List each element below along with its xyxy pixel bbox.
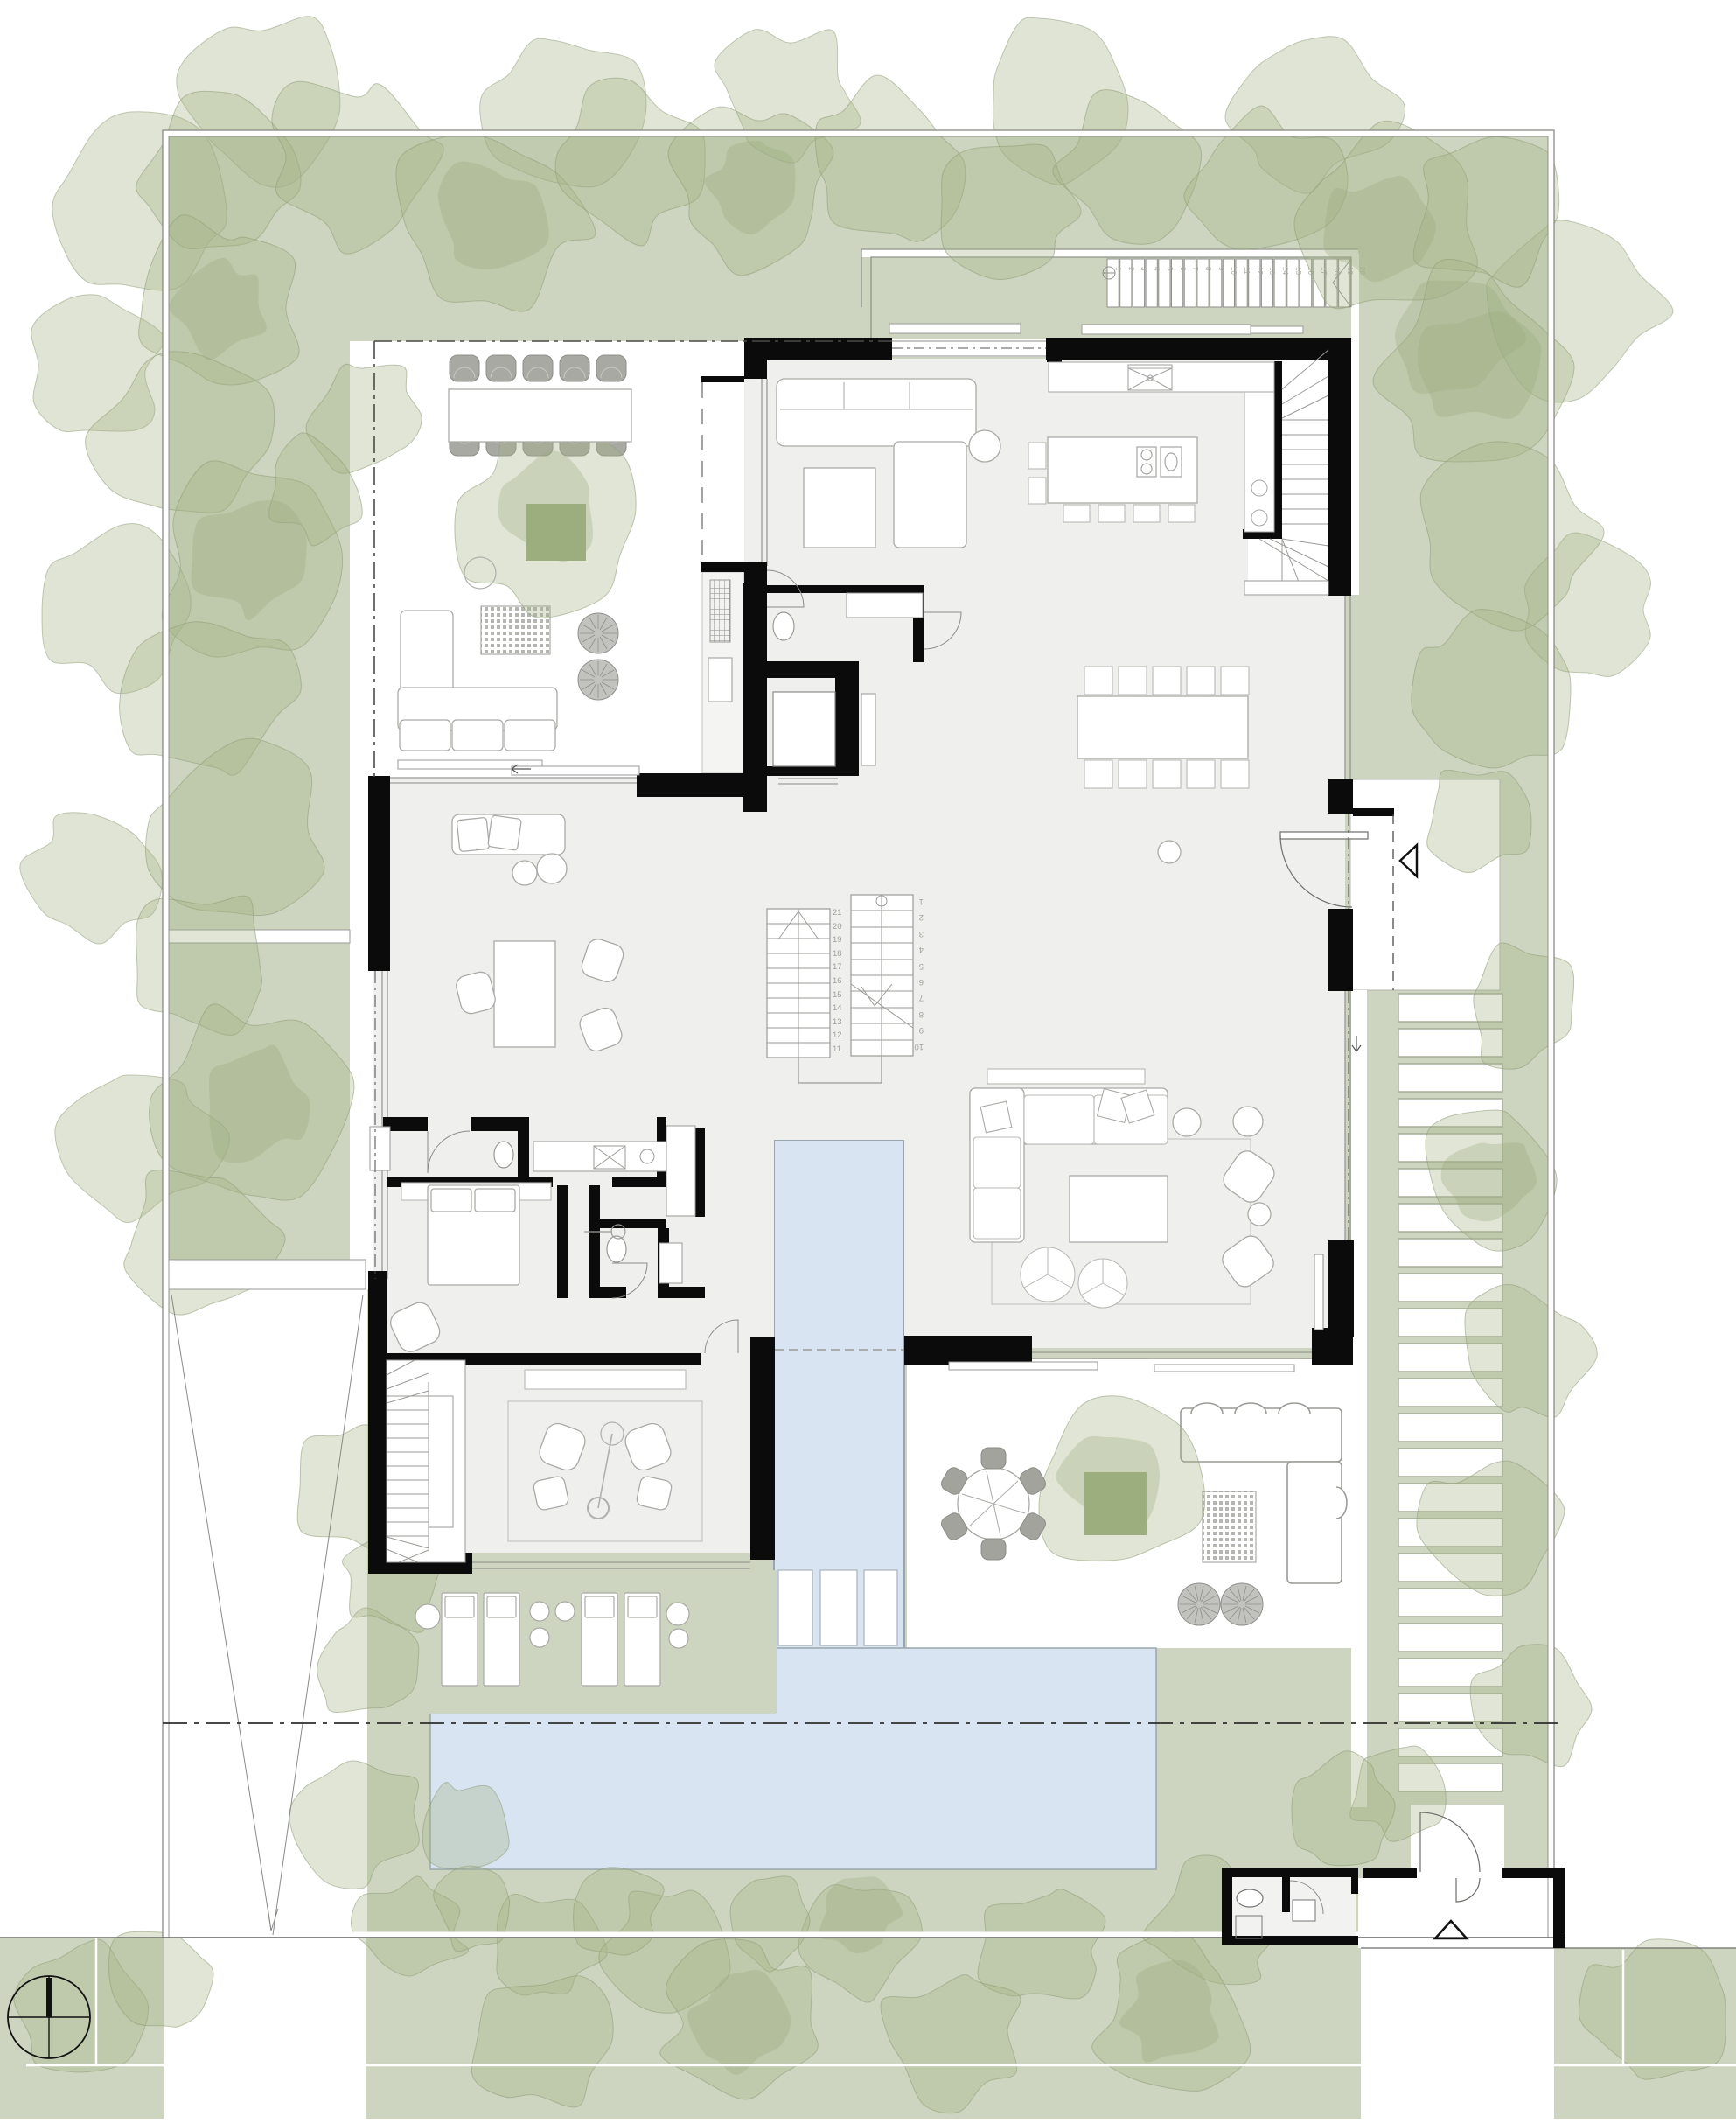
svg-text:4: 4 — [1153, 267, 1161, 271]
svg-text:13: 13 — [833, 1017, 842, 1027]
svg-text:15: 15 — [833, 990, 842, 1000]
svg-text:9: 9 — [1217, 267, 1225, 271]
svg-text:12: 12 — [1256, 267, 1264, 275]
svg-text:2: 2 — [1127, 267, 1135, 271]
svg-text:14: 14 — [833, 1003, 842, 1013]
svg-text:16: 16 — [833, 976, 842, 986]
svg-text:1: 1 — [919, 897, 924, 906]
svg-text:10: 10 — [1230, 267, 1238, 275]
svg-text:18: 18 — [833, 949, 842, 959]
svg-text:19: 19 — [833, 935, 842, 945]
svg-text:5: 5 — [1166, 267, 1174, 271]
svg-text:13: 13 — [1268, 267, 1276, 275]
svg-text:7: 7 — [1191, 267, 1199, 271]
svg-text:7: 7 — [919, 993, 924, 1002]
svg-text:11: 11 — [833, 1044, 841, 1054]
svg-text:21: 21 — [833, 908, 842, 918]
svg-text:17: 17 — [833, 962, 842, 972]
svg-text:4: 4 — [919, 945, 924, 954]
svg-text:8: 8 — [919, 1009, 924, 1019]
svg-text:2: 2 — [919, 912, 924, 922]
svg-text:15: 15 — [1294, 267, 1302, 275]
svg-text:1: 1 — [1114, 267, 1122, 271]
svg-text:3: 3 — [1140, 267, 1147, 271]
svg-text:20: 20 — [833, 922, 842, 932]
svg-text:11: 11 — [1243, 267, 1251, 275]
svg-text:9: 9 — [919, 1025, 924, 1035]
svg-text:6: 6 — [1179, 267, 1187, 271]
svg-text:5: 5 — [919, 961, 924, 971]
svg-text:3: 3 — [919, 929, 924, 939]
svg-text:8: 8 — [1204, 267, 1212, 271]
svg-text:10: 10 — [914, 1042, 924, 1051]
svg-text:14: 14 — [1281, 267, 1289, 275]
svg-text:12: 12 — [833, 1030, 842, 1040]
svg-text:6: 6 — [919, 977, 924, 987]
